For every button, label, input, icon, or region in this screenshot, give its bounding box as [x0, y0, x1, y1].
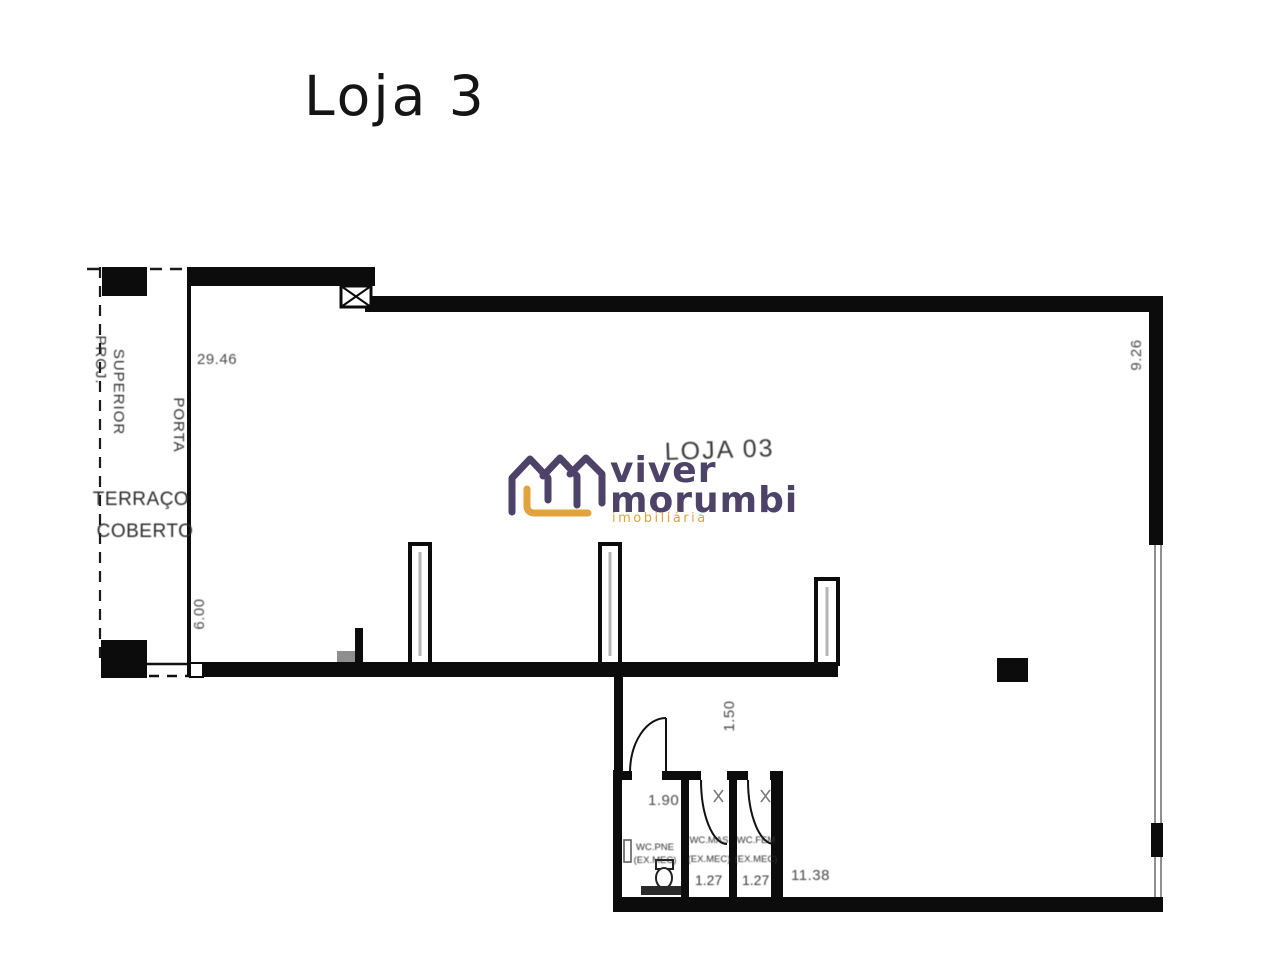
- door-sill-box: [190, 663, 203, 677]
- dim-right: 9.26: [1128, 339, 1145, 370]
- wc-divider-1: [681, 771, 689, 898]
- logo-tagline: imobiliária: [612, 511, 708, 526]
- vent-mark-mas: [714, 790, 723, 802]
- dim-bottom: 11.38: [791, 867, 830, 884]
- grab-bar-icon: [624, 840, 631, 862]
- label-coberto: COBERTO: [97, 521, 194, 542]
- bottom-wall: [613, 897, 1163, 912]
- corridor-wall: [614, 677, 623, 771]
- interior-wall-main: [203, 662, 838, 677]
- label-wc-pne-sub: (EX.MEC): [634, 855, 677, 866]
- hatched-column: [341, 286, 371, 307]
- label-terraco: TERRAÇO: [93, 489, 189, 510]
- right-wall-top: [1149, 296, 1163, 545]
- wc-top-seg-1: [613, 771, 632, 780]
- pillar-top-left: [102, 267, 147, 296]
- doors-group: [630, 718, 774, 844]
- pillar-bottom-left: [101, 640, 147, 678]
- pillar-3: [816, 579, 838, 664]
- wall-stub: [355, 628, 363, 662]
- label-wc-mas-sub: (EX.MEC): [688, 854, 731, 865]
- pillar-1: [410, 544, 430, 664]
- top-wall-right: [365, 296, 1163, 312]
- page-title: Loja 3: [304, 64, 487, 128]
- wc-left-wall: [613, 770, 622, 912]
- gray-block: [337, 651, 355, 662]
- sink-counter: [641, 886, 681, 895]
- label-wc-pne: WC.PNE: [636, 842, 674, 853]
- label-proj: PROJ.: [92, 335, 109, 384]
- top-wall-left: [187, 267, 375, 286]
- label-wc-fem-sub: (EX.MEC): [735, 854, 778, 865]
- dim-wc-mas: 1.27: [695, 872, 722, 888]
- floor-plan-drawing: Loja 3: [0, 0, 1275, 960]
- vent-mark-fem: [761, 790, 770, 802]
- label-porta: PORTA: [170, 397, 187, 452]
- label-superior: SUPERIOR: [110, 349, 127, 435]
- label-wc-fem: WC.FEM: [737, 835, 776, 846]
- dim-top: 29.46: [197, 351, 237, 368]
- pillar-right: [997, 658, 1028, 682]
- walls-group: [87, 267, 1163, 912]
- dim-wc-fem: 1.27: [742, 872, 769, 888]
- label-wc-mas: WC.MAS: [689, 835, 728, 846]
- floor-plan-page: Loja 3: [0, 0, 1275, 960]
- dim-corridor: 1.50: [721, 700, 738, 731]
- dim-wc-pne: 1.90: [648, 792, 679, 809]
- room-label: LOJA 03: [664, 434, 775, 466]
- door-wc-pne: [630, 718, 666, 772]
- dim-terrace: 6.00: [191, 598, 208, 629]
- right-wall-segment: [1151, 823, 1163, 857]
- pillar-2: [600, 544, 620, 664]
